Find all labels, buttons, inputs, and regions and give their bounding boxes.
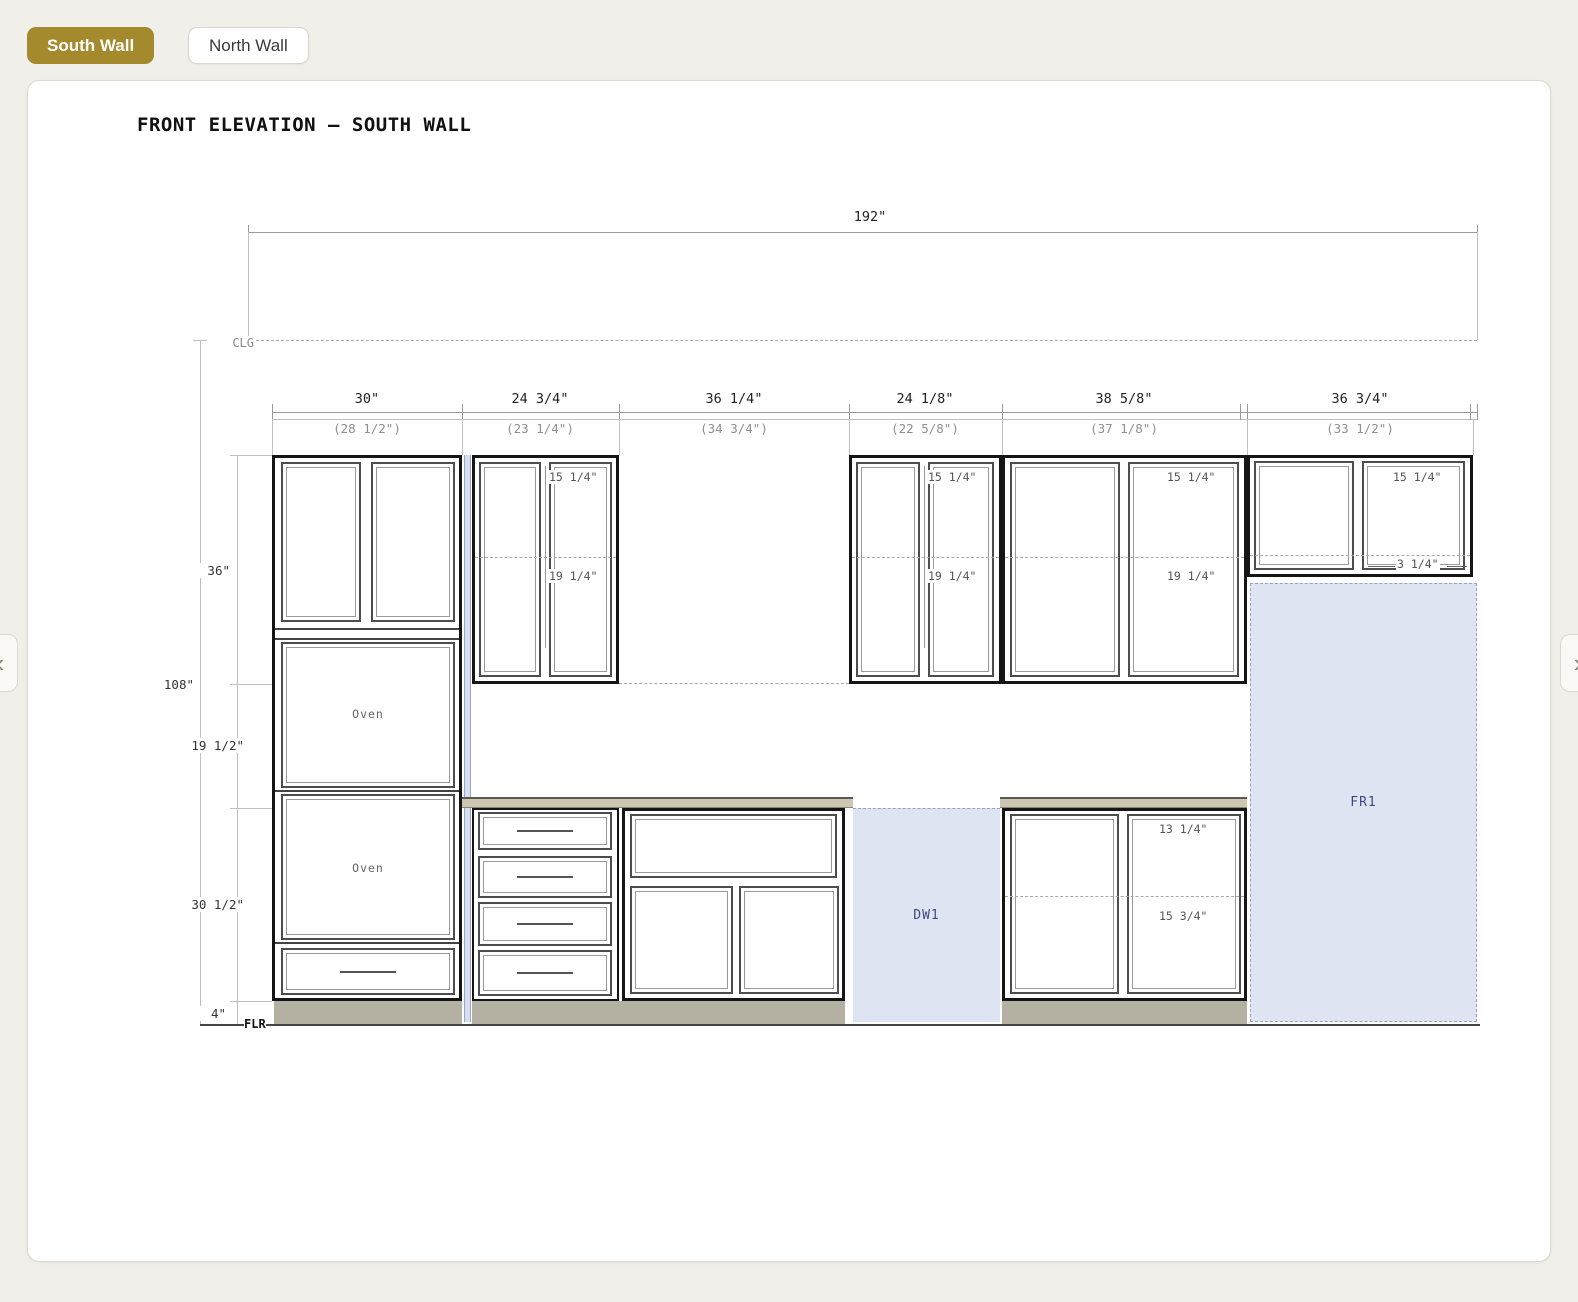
dim-tick xyxy=(1470,404,1471,420)
upper-height-dim: 36" xyxy=(186,563,232,578)
interior-dim-line xyxy=(545,466,546,648)
interior-dim: 15 1/4" xyxy=(1392,470,1442,484)
extension-line xyxy=(462,419,463,455)
interior-dim: 15 1/4" xyxy=(927,470,977,484)
tab-north-wall[interactable]: North Wall xyxy=(188,27,309,64)
section-dim-line-2 xyxy=(272,419,1477,420)
dim-tick xyxy=(1240,404,1241,420)
next-wall-button[interactable]: › xyxy=(1560,634,1578,692)
interior-dim: 19 1/4" xyxy=(548,569,598,583)
dim-tick xyxy=(230,684,272,685)
oven-upper-label: Oven xyxy=(281,707,455,721)
dim-leader xyxy=(1447,566,1467,567)
backsplash-gap-dim: 19 1/2" xyxy=(178,738,246,753)
dim-tick xyxy=(230,808,272,809)
section-width-dim: 36 1/4" xyxy=(694,391,774,407)
drawer xyxy=(478,856,612,898)
dim-tick xyxy=(1002,404,1003,420)
fridge-area: FR1 xyxy=(1250,583,1477,1022)
cabinet-divider xyxy=(275,638,459,640)
section-opening-dim: (37 1/8") xyxy=(1069,421,1179,436)
section-width-dim: 36 3/4" xyxy=(1320,391,1400,407)
dim-tick xyxy=(619,404,620,420)
dim-tick xyxy=(230,455,272,456)
dim-tick xyxy=(1477,404,1478,420)
chevron-left-icon: ‹ xyxy=(0,648,4,679)
section-width-dim: 24 1/8" xyxy=(885,391,965,407)
drawer-handle xyxy=(517,876,573,878)
floor-line xyxy=(200,1024,1480,1026)
dim-tick xyxy=(193,340,207,341)
drawer-handle xyxy=(517,923,573,925)
cabinet-door xyxy=(1010,814,1119,994)
cabinet-door xyxy=(1010,462,1120,677)
drawer xyxy=(478,902,612,946)
drawer xyxy=(478,950,612,996)
chevron-right-icon: › xyxy=(1574,648,1578,679)
interior-dim: 13 1/4" xyxy=(1158,822,1208,836)
cabinet-door xyxy=(1127,814,1241,994)
extension-line xyxy=(1477,232,1478,340)
interior-dim-line xyxy=(924,466,925,648)
filler-strip xyxy=(464,455,471,1022)
cabinet-divider xyxy=(275,942,459,944)
drawer xyxy=(478,812,612,850)
fridge-label: FR1 xyxy=(1350,795,1376,810)
shelf-line xyxy=(852,557,999,558)
section-opening-dim: (34 3/4") xyxy=(679,421,789,436)
dim-tick xyxy=(849,404,850,420)
dishwasher-label: DW1 xyxy=(913,908,939,923)
cabinet-divider xyxy=(275,790,459,792)
prev-wall-button[interactable]: ‹ xyxy=(0,634,18,692)
extension-line xyxy=(1247,419,1248,455)
section-width-dim: 30" xyxy=(327,391,407,407)
toe-kick xyxy=(274,1001,462,1024)
section-opening-dim: (23 1/4") xyxy=(485,421,595,436)
section-opening-dim: (28 1/2") xyxy=(312,421,422,436)
dim-tick xyxy=(230,1001,272,1002)
extension-line xyxy=(272,419,273,455)
toe-kick-dim: 4" xyxy=(200,1006,228,1021)
tall-cabinet-drawer xyxy=(281,948,455,995)
section-width-dim: 24 3/4" xyxy=(500,391,580,407)
cabinet-door xyxy=(281,462,361,622)
extension-line xyxy=(1002,419,1003,455)
dim-tick xyxy=(1247,404,1248,420)
cabinet-divider xyxy=(275,628,459,630)
drawer-handle xyxy=(517,830,573,832)
section-dim-line xyxy=(272,412,1477,413)
total-height-dim-line xyxy=(200,340,201,1024)
shelf-line xyxy=(1005,896,1244,897)
section-width-dim: 38 5/8" xyxy=(1084,391,1164,407)
cabinet-door xyxy=(630,886,733,994)
shelf-line xyxy=(1005,557,1244,558)
interior-dim: 15 1/4" xyxy=(1166,470,1216,484)
drawer-handle xyxy=(517,972,573,974)
ceiling-line xyxy=(256,340,1477,341)
cabinet-door xyxy=(739,886,839,994)
countertop-right xyxy=(1000,797,1247,808)
cabinet-door xyxy=(856,462,920,677)
extension-line xyxy=(1473,419,1474,455)
drawing-title: FRONT ELEVATION — SOUTH WALL xyxy=(137,114,471,136)
extension-line xyxy=(849,419,850,455)
upper-cabinet-bottom-line xyxy=(619,683,849,684)
interior-dim: 15 1/4" xyxy=(548,470,598,484)
interior-dim: 19 1/4" xyxy=(1166,569,1216,583)
extension-line xyxy=(248,232,249,340)
tab-north-wall-label: North Wall xyxy=(209,36,288,56)
ceiling-label: CLG xyxy=(214,336,254,350)
dishwasher-area: DW1 xyxy=(853,808,1000,1022)
dim-leader xyxy=(1368,566,1395,567)
cabinet-door xyxy=(479,462,541,677)
tab-south-wall[interactable]: South Wall xyxy=(27,27,154,64)
oven-lower-label: Oven xyxy=(281,861,455,875)
section-opening-dim: (33 1/2") xyxy=(1305,421,1415,436)
interior-dim: 19 1/4" xyxy=(927,569,977,583)
floor-label: FLR xyxy=(244,1017,266,1031)
dim-tick xyxy=(272,404,273,420)
toe-kick xyxy=(472,1001,845,1024)
interior-dim: 15 3/4" xyxy=(1158,909,1208,923)
tab-south-wall-label: South Wall xyxy=(47,36,134,56)
toe-kick xyxy=(1002,1001,1247,1024)
dim-tick xyxy=(462,404,463,420)
extension-line xyxy=(619,419,620,455)
interior-dim: 3 1/4" xyxy=(1396,557,1440,571)
shelf-line xyxy=(1250,555,1470,556)
base-height-dim: 30 1/2" xyxy=(178,897,246,912)
drawer-handle xyxy=(340,971,396,973)
total-height-dim: 108" xyxy=(148,677,196,692)
overall-width-dim: 192" xyxy=(838,209,902,225)
cabinet-door xyxy=(1254,461,1354,570)
false-front-panel xyxy=(630,814,837,878)
section-opening-dim: (22 5/8") xyxy=(870,421,980,436)
cabinet-door xyxy=(371,462,455,622)
countertop-left xyxy=(462,797,853,808)
overall-dim-line xyxy=(248,232,1477,233)
